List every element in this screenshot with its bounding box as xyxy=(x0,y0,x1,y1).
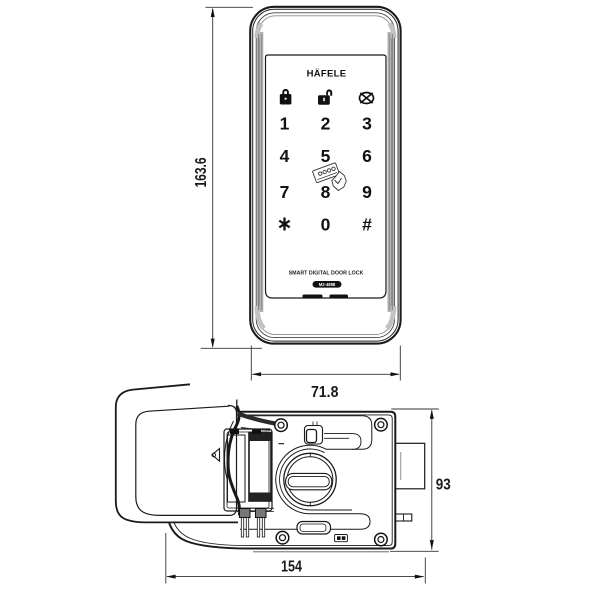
svg-text:M2-4888: M2-4888 xyxy=(319,282,336,287)
svg-text:8: 8 xyxy=(321,182,331,202)
svg-text:3: 3 xyxy=(362,113,372,133)
svg-text:2: 2 xyxy=(321,113,331,133)
svg-text:SMART DIGITAL DOOR LOCK: SMART DIGITAL DOOR LOCK xyxy=(289,271,364,277)
svg-text:1: 1 xyxy=(280,113,290,133)
svg-text:9: 9 xyxy=(362,182,372,202)
svg-text:7: 7 xyxy=(280,182,290,202)
svg-text:93: 93 xyxy=(436,477,451,494)
svg-text:0: 0 xyxy=(321,214,331,234)
svg-text:6: 6 xyxy=(362,146,372,166)
svg-text:5: 5 xyxy=(321,146,331,166)
svg-text:163.6: 163.6 xyxy=(193,157,210,187)
svg-text:#: # xyxy=(362,214,372,234)
svg-text:HÄFELE: HÄFELE xyxy=(307,69,347,80)
svg-text:4: 4 xyxy=(280,146,290,166)
svg-text:71.8: 71.8 xyxy=(311,384,339,401)
svg-text:154: 154 xyxy=(281,559,302,576)
